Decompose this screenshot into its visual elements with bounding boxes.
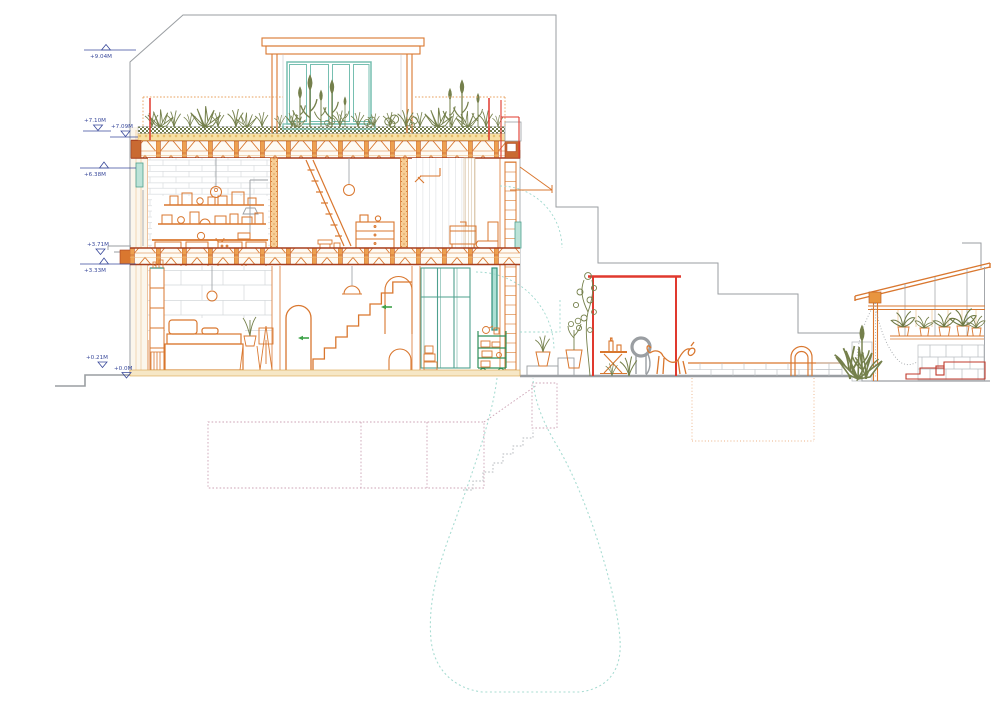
benches-planters xyxy=(527,318,582,376)
partition-wall-1 xyxy=(271,158,278,248)
loft-room xyxy=(306,158,394,248)
staircase xyxy=(313,282,412,370)
dog xyxy=(647,342,695,374)
red-pergola-frame xyxy=(588,277,681,377)
lower-floor xyxy=(130,260,520,376)
sculpture xyxy=(632,338,650,375)
toilet xyxy=(476,222,498,248)
door-swing-lower xyxy=(476,272,560,350)
cut-window-upper xyxy=(136,163,143,187)
underground-outlines xyxy=(208,378,814,692)
handle-arrows xyxy=(298,305,392,340)
storage-boxes xyxy=(424,346,437,370)
level-label: +7.10M xyxy=(84,118,106,124)
arched-opening xyxy=(385,277,412,335)
green-roof-assembly xyxy=(131,122,521,158)
hanging-shelf xyxy=(868,306,985,339)
partition-wall-2 xyxy=(401,158,408,248)
section-drawing: +9.04M +7.10M +7.09M +6.38M +3.71M +3.33… xyxy=(0,0,1000,707)
level-label: +9.04M xyxy=(90,54,112,60)
pulley-box xyxy=(869,292,881,303)
loft-ladder xyxy=(306,160,351,246)
roof-substrate-layer xyxy=(138,127,507,134)
floor-slab xyxy=(130,370,520,376)
level-marker-021: +0.21M xyxy=(86,355,108,368)
dome-lamp xyxy=(342,286,362,294)
main-building-section xyxy=(108,38,562,376)
level-label: +6.38M xyxy=(84,172,106,178)
level-label: +7.09M xyxy=(111,124,133,130)
shelf-trolley xyxy=(478,326,506,374)
level-label: +3.71M xyxy=(87,242,109,248)
side-table xyxy=(600,338,627,374)
cistern-outline xyxy=(430,378,620,692)
level-marker-904: +9.04M xyxy=(84,45,136,61)
stair-hall xyxy=(286,266,412,370)
cut-sliding-door xyxy=(492,268,497,330)
level-marker-371: +3.71M xyxy=(87,242,109,255)
roof-garden-plants xyxy=(145,76,503,127)
level-label: +0.21M xyxy=(86,355,108,361)
level-marker-710: +7.10M xyxy=(83,118,111,131)
balcony-slab xyxy=(120,250,131,264)
roof-insulation-layer xyxy=(138,134,507,141)
garden-room xyxy=(421,268,506,374)
level-label: +0.0M xyxy=(114,366,133,372)
level-label: +3.33M xyxy=(84,268,106,274)
courtyard xyxy=(527,273,695,376)
greenhouse-shed xyxy=(835,263,990,381)
pool-dashed-outline xyxy=(692,378,814,441)
cut-window-bath xyxy=(515,222,521,248)
pool-handrail-arch xyxy=(791,347,812,377)
arched-niche xyxy=(389,349,411,370)
roof-edge-block-left xyxy=(131,141,141,159)
stool xyxy=(318,240,340,248)
pool-wall xyxy=(688,347,842,377)
pendant-light xyxy=(344,185,355,196)
level-marker-638: +6.38M xyxy=(80,162,136,178)
section-drawing-canvas: +9.04M +7.10M +7.09M +6.38M +3.71M +3.33… xyxy=(0,0,1000,707)
roof-joist-band xyxy=(131,141,520,159)
level-annotations: +9.04M +7.10M +7.09M +6.38M +3.71M +3.33… xyxy=(80,45,138,379)
basement-rooms-outline xyxy=(208,383,557,488)
dresser xyxy=(356,215,394,248)
flower-pot xyxy=(536,352,550,366)
shelf-pots xyxy=(898,326,981,336)
mid-floor-band xyxy=(130,248,520,265)
underground-stair-outline xyxy=(463,430,533,490)
pool-steps xyxy=(816,363,842,376)
